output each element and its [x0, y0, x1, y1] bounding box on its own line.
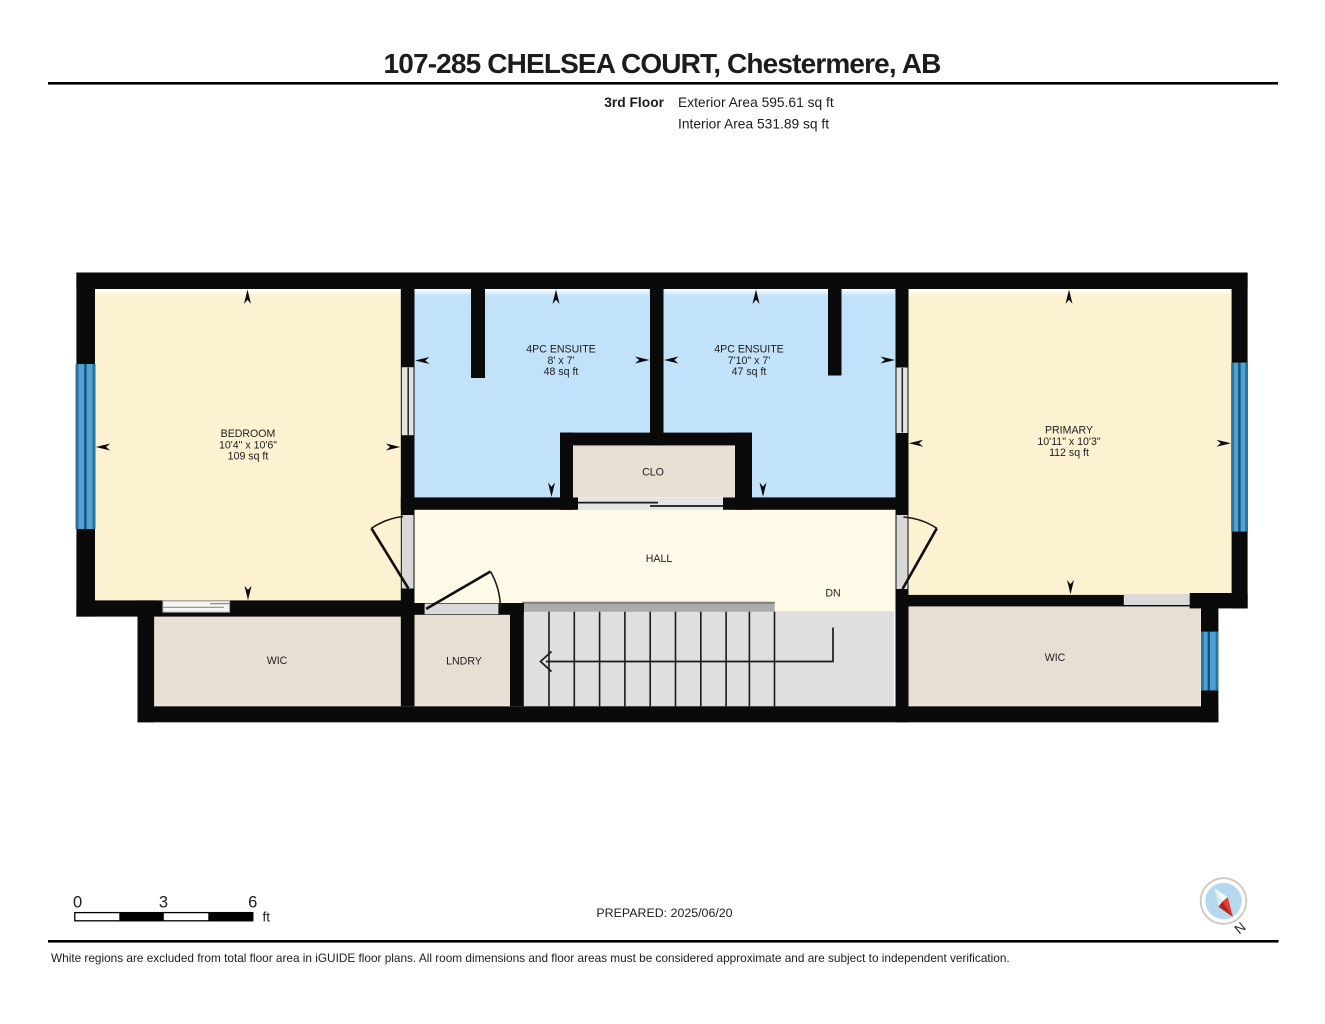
svg-text:107-285 CHELSEA COURT, Chester: 107-285 CHELSEA COURT, Chestermere, AB: [384, 48, 941, 79]
svg-text:47 sq ft: 47 sq ft: [732, 366, 767, 378]
svg-text:Exterior Area 595.61 sq ft: Exterior Area 595.61 sq ft: [678, 95, 834, 110]
svg-text:ft: ft: [263, 910, 271, 925]
svg-text:WIC: WIC: [267, 655, 288, 667]
svg-text:PRIMARY: PRIMARY: [1045, 425, 1093, 437]
svg-text:Interior Area 531.89 sq ft: Interior Area 531.89 sq ft: [678, 117, 829, 132]
svg-text:DN: DN: [825, 588, 840, 600]
svg-text:BEDROOM: BEDROOM: [221, 428, 276, 440]
svg-text:CLO: CLO: [642, 467, 664, 479]
svg-text:6: 6: [248, 894, 257, 912]
svg-text:LNDRY: LNDRY: [446, 656, 482, 668]
svg-text:109 sq ft: 109 sq ft: [228, 451, 269, 463]
svg-text:112 sq ft: 112 sq ft: [1049, 447, 1089, 459]
svg-text:HALL: HALL: [646, 553, 673, 565]
svg-text:PREPARED: 2025/06/20: PREPARED: 2025/06/20: [596, 906, 732, 920]
svg-text:White regions are excluded fro: White regions are excluded from total fl…: [51, 951, 1010, 965]
svg-text:4PC ENSUITE: 4PC ENSUITE: [526, 344, 595, 356]
svg-text:3: 3: [159, 894, 168, 912]
svg-text:3rd Floor: 3rd Floor: [604, 95, 664, 110]
svg-text:0: 0: [73, 894, 82, 912]
svg-text:4PC ENSUITE: 4PC ENSUITE: [714, 344, 783, 356]
svg-text:48 sq ft: 48 sq ft: [544, 366, 579, 378]
svg-text:WIC: WIC: [1045, 652, 1066, 664]
